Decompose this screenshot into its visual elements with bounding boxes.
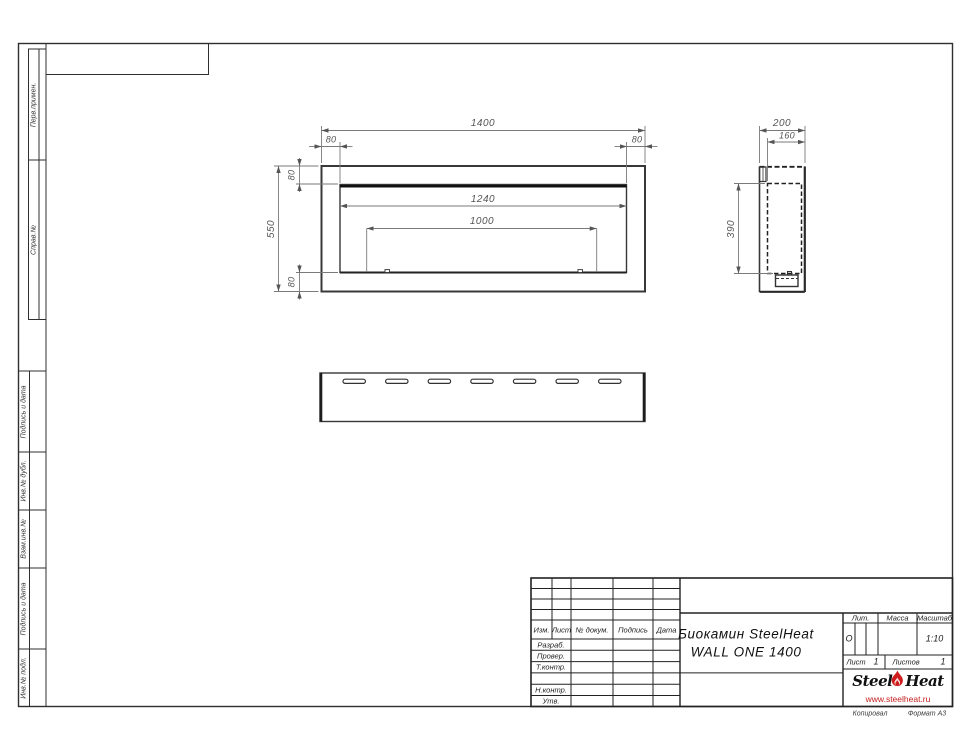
strip-label-inv-dubl: Инв.№ дубл. <box>20 460 27 501</box>
tb-row-razrab: Разраб. <box>537 641 564 649</box>
tb-sheets-value: 1 <box>940 658 945 667</box>
tb-lit-label: Лит. <box>852 614 870 622</box>
dim-opening-width: 1240 <box>471 195 495 205</box>
logo-site-url: www.steelheat.ru <box>866 694 931 704</box>
logo-heat-text: Heat <box>905 674 943 689</box>
dim-depth: 200 <box>773 119 791 129</box>
tb-row-prover: Провер. <box>537 652 565 660</box>
strip-label-podpis-data-2: Подпись и дата <box>20 582 27 635</box>
side-view-dimensions <box>734 126 805 274</box>
footer-format-label: Формат А3 <box>908 710 946 717</box>
dim-inner-depth: 160 <box>779 131 795 140</box>
strip-label-vzam-inv: Взам.инв.№ <box>20 519 27 558</box>
burner-mount-right <box>578 270 583 273</box>
tb-scale-label: Масштаб <box>917 614 952 622</box>
sheet-frame <box>19 44 953 707</box>
burner-mount-left <box>385 270 390 273</box>
tb-col-list: Лист <box>552 626 571 634</box>
tb-col-sign: Подпись <box>618 626 648 634</box>
tb-sheet-label: Лист <box>846 658 865 666</box>
footer-copied-label: Копировал <box>853 710 888 717</box>
strip-label-podpis-data-1: Подпись и дата <box>20 385 27 438</box>
tb-sheets-label: Листов <box>892 658 919 666</box>
tb-scale-value: 1:10 <box>926 635 944 644</box>
dim-burner-width: 1000 <box>470 217 494 227</box>
tb-lit-value: О <box>845 635 852 644</box>
tb-col-izm: Изм. <box>534 626 550 634</box>
dim-offset-left: 80 <box>326 135 337 144</box>
product-title-line2: WALL ONE 1400 <box>691 645 802 659</box>
top-left-designation-box <box>46 44 209 75</box>
dim-inner-height: 390 <box>727 219 737 237</box>
dim-offset-right: 80 <box>632 135 643 144</box>
burner-box <box>776 275 799 287</box>
strip-label-inv-podl: Инв.№ подл. <box>20 657 27 699</box>
tb-col-doc: № докум. <box>575 626 608 634</box>
tb-col-date: Дата <box>657 626 677 634</box>
bottom-view <box>320 373 645 422</box>
strip-label-perv-primen: Перв.примен. <box>30 82 37 127</box>
vent-slots <box>343 379 621 383</box>
tb-row-utv: Утв. <box>542 697 559 705</box>
strip-label-sprav-no: Справ.№ <box>30 225 37 255</box>
dim-front-width: 1400 <box>471 119 495 129</box>
tb-row-nkontr: Н.контр. <box>535 686 567 694</box>
drawing-geometry <box>0 0 970 749</box>
inner-body-hidden <box>768 184 802 274</box>
steelheat-logo: Steel Heat <box>845 671 951 692</box>
tb-mass-label: Масса <box>886 614 908 622</box>
tb-sheet-value: 1 <box>873 658 878 667</box>
dim-offset-top: 80 <box>288 170 297 181</box>
dim-front-height: 550 <box>267 220 277 238</box>
logo-steel-text: Steel <box>852 674 892 689</box>
tb-row-tkontr: Т.контр. <box>536 663 566 671</box>
dim-offset-bottom: 80 <box>288 277 297 288</box>
product-title-line1: Биокамин SteelHeat <box>678 627 814 641</box>
drawing-sheet: { "frame": { "left_strip_labels": ["Перв… <box>0 0 970 749</box>
